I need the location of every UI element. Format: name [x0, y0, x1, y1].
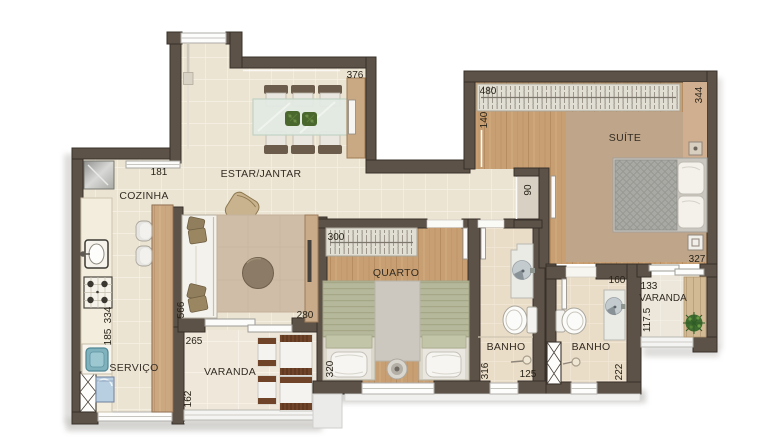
svg-text:160: 160 — [609, 275, 626, 286]
svg-text:VARANDA: VARANDA — [639, 293, 687, 304]
svg-text:SERVIÇO: SERVIÇO — [109, 362, 158, 374]
svg-text:COZINHA: COZINHA — [119, 190, 168, 202]
svg-text:280: 280 — [297, 310, 314, 321]
svg-text:327: 327 — [689, 254, 706, 265]
svg-text:344: 344 — [694, 86, 705, 103]
svg-text:265: 265 — [186, 336, 203, 347]
svg-text:VARANDA: VARANDA — [204, 366, 256, 378]
svg-text:BANHO: BANHO — [487, 341, 526, 353]
svg-text:316: 316 — [480, 362, 491, 379]
svg-text:376: 376 — [347, 70, 364, 81]
svg-text:480: 480 — [480, 86, 497, 97]
svg-text:ESTAR/JANTAR: ESTAR/JANTAR — [221, 168, 302, 180]
svg-text:162: 162 — [183, 390, 194, 407]
svg-text:QUARTO: QUARTO — [373, 267, 419, 279]
svg-text:222: 222 — [614, 363, 625, 380]
svg-text:133: 133 — [641, 281, 658, 292]
svg-text:185: 185 — [103, 328, 114, 345]
svg-text:300: 300 — [328, 232, 345, 243]
svg-text:181: 181 — [151, 167, 168, 178]
svg-text:BANHO: BANHO — [572, 341, 611, 353]
svg-text:90: 90 — [523, 184, 534, 196]
svg-text:140: 140 — [479, 111, 490, 128]
svg-text:SUÍTE: SUÍTE — [609, 131, 641, 144]
svg-text:320: 320 — [325, 360, 336, 377]
svg-text:566: 566 — [176, 301, 187, 318]
svg-text:125: 125 — [520, 369, 537, 380]
svg-text:117.5: 117.5 — [642, 307, 653, 332]
svg-text:334: 334 — [103, 306, 114, 323]
